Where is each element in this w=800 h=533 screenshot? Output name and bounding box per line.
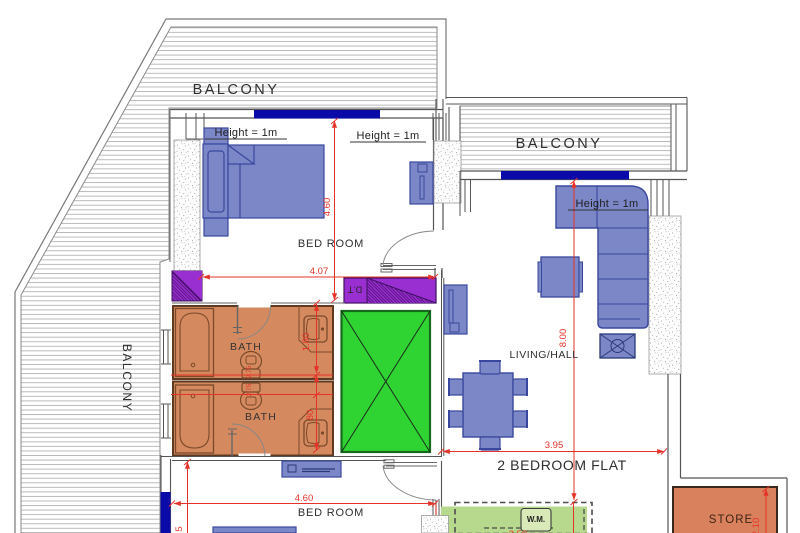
svg-text:4.60: 4.60	[322, 198, 333, 217]
svg-text:5: 5	[174, 526, 185, 531]
svg-text:BALCONY: BALCONY	[516, 136, 603, 152]
svg-text:STORE: STORE	[709, 514, 753, 526]
svg-text:3.95: 3.95	[545, 440, 564, 451]
svg-text:BED ROOM: BED ROOM	[298, 507, 364, 519]
svg-text:LIVING/HALL: LIVING/HALL	[509, 349, 578, 361]
svg-text:4.60: 4.60	[295, 493, 314, 504]
svg-text:W.M.: W.M.	[527, 515, 545, 524]
svg-text:BALCONY: BALCONY	[193, 82, 280, 98]
svg-text:2 BEDROOM FLAT: 2 BEDROOM FLAT	[497, 457, 627, 473]
svg-text:BALCONY: BALCONY	[120, 344, 134, 413]
svg-text:BED ROOM: BED ROOM	[298, 238, 364, 250]
svg-text:BATH: BATH	[245, 411, 277, 423]
svg-text:8.00: 8.00	[558, 329, 569, 348]
svg-text:2.50: 2.50	[509, 529, 528, 533]
svg-text:2.75: 2.75	[246, 365, 253, 378]
svg-text:BATH: BATH	[230, 341, 262, 353]
svg-text:2.10: 2.10	[751, 518, 762, 533]
svg-text:2.75: 2.75	[246, 383, 253, 396]
svg-text:4.07: 4.07	[310, 266, 329, 277]
svg-text:Height = 1m: Height = 1m	[576, 198, 639, 210]
svg-text:Height = 1m: Height = 1m	[215, 127, 278, 139]
svg-text:Height = 1m: Height = 1m	[357, 130, 420, 142]
svg-text:1.80: 1.80	[301, 333, 312, 352]
svg-text:D.T: D.T	[347, 285, 362, 295]
svg-text:80: 80	[305, 410, 316, 421]
